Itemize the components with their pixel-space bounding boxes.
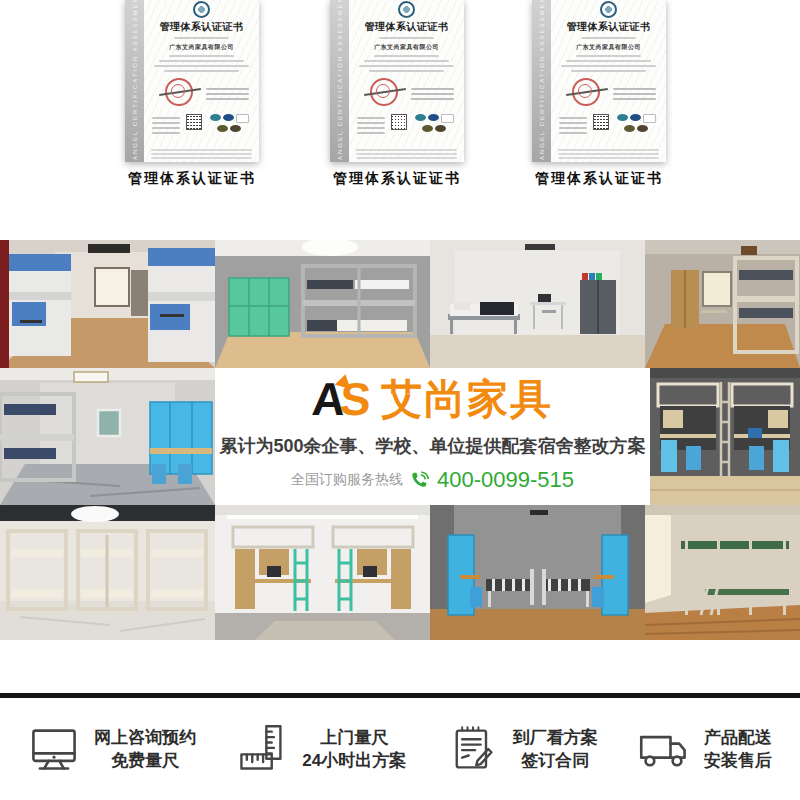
service-item-contract: 到厂看方案 签订合同 xyxy=(447,723,598,775)
certification-emblem-icon xyxy=(398,1,415,18)
hotline-row: 全国订购服务热线 400-0099-515 xyxy=(291,467,574,493)
certificate-title: 管理体系认证证书 xyxy=(151,20,252,34)
certificate-title: 管理体系认证证书 xyxy=(356,20,457,34)
photo-blue-bunk-dorm xyxy=(0,240,215,368)
accreditation-badges xyxy=(411,114,457,132)
certificate-2: ANGEL CERTIFICATION ASSESSMENT SERVICES … xyxy=(330,0,464,162)
service-features-bar: 网上咨询预约 免费量尺 上门量尺 24小时出方案 xyxy=(0,698,800,800)
certificate-ribbon: ANGEL CERTIFICATION ASSESSMENT SERVICES xyxy=(125,0,144,162)
hotline-label: 全国订购服务热线 xyxy=(291,471,403,489)
certificate-paper: 管理体系认证证书 广东艾尚家具有限公司 xyxy=(144,0,259,162)
text-line xyxy=(154,65,250,67)
service-line2: 24小时出方案 xyxy=(302,749,406,772)
text-line xyxy=(159,60,245,62)
service-line2: 安装售后 xyxy=(704,749,772,772)
qr-code-icon xyxy=(593,114,609,130)
service-item-delivery: 产品配送 安装售后 xyxy=(638,723,772,775)
photo-single-bed-office xyxy=(430,240,645,368)
certificate-company: 广东艾尚家具有限公司 xyxy=(151,43,252,52)
logo: A S 艾尚家具 xyxy=(312,373,553,421)
service-line1: 上门量尺 xyxy=(302,726,406,749)
accreditation-badges xyxy=(206,114,252,132)
text-line xyxy=(169,55,235,57)
fine-print xyxy=(151,147,252,159)
photo-gray-dorm-blue-lockers xyxy=(0,368,215,505)
dorm-photo-gallery: A S 艾尚家具 累计为500余企事、学校、单位提供配套宿舍整改方案 全国订购服… xyxy=(0,240,800,640)
certificate-paper: 管理体系认证证书 广东艾尚家具有限公司 xyxy=(349,0,464,162)
red-seal-icon xyxy=(370,78,398,106)
brand-name: 艾尚家具 xyxy=(381,377,553,421)
certificate-dates xyxy=(205,85,250,100)
qr-code-icon xyxy=(186,114,202,130)
certification-emblem-icon xyxy=(193,1,210,18)
service-line1: 产品配送 xyxy=(704,726,772,749)
certificate-ribbon: ANGEL CERTIFICATION ASSESSMENT SERVICES xyxy=(532,0,551,162)
hotline-number: 400-0099-515 xyxy=(437,467,574,493)
certificate-caption-1: 管理体系认证证书 xyxy=(125,170,259,188)
certificate-3: ANGEL CERTIFICATION ASSESSMENT SERVICES … xyxy=(532,0,666,162)
service-line2: 签订合同 xyxy=(513,749,598,772)
service-line2: 免费量尺 xyxy=(94,749,196,772)
certificate-number-line xyxy=(174,37,230,39)
photo-dark-loft-workstations xyxy=(650,368,800,505)
service-item-measure: 上门量尺 24小时出方案 xyxy=(236,723,406,775)
service-text: 产品配送 安装售后 xyxy=(704,726,772,772)
certificate-company: 广东艾尚家具有限公司 xyxy=(558,43,659,52)
phone-icon xyxy=(410,470,430,490)
photo-green-lockers-dorm xyxy=(215,240,430,368)
banner-headline: 累计为500余企事、学校、单位提供配套宿舍整改方案 xyxy=(219,434,645,458)
ribbon-text: ANGEL CERTIFICATION ASSESSMENT SERVICES xyxy=(337,0,343,162)
certificate-caption-2: 管理体系认证证书 xyxy=(330,170,464,188)
certificate-title: 管理体系认证证书 xyxy=(558,20,659,34)
ribbon-text: ANGEL CERTIFICATION ASSESSMENT SERVICES xyxy=(132,0,138,162)
photo-green-deck-loft-bed xyxy=(645,505,800,640)
logo-letter-s: S xyxy=(339,377,373,421)
ruler-icon xyxy=(236,723,288,775)
red-seal-icon xyxy=(572,78,600,106)
service-line1: 网上咨询预约 xyxy=(94,726,196,749)
service-line1: 到厂看方案 xyxy=(513,726,598,749)
page: ANGEL CERTIFICATION ASSESSMENT SERVICES … xyxy=(0,0,800,800)
brand-banner: A S 艾尚家具 累计为500余企事、学校、单位提供配套宿舍整改方案 全国订购服… xyxy=(215,368,650,505)
ribbon-text: ANGEL CERTIFICATION ASSESSMENT SERVICES xyxy=(539,0,545,162)
certificate-caption-3: 管理体系认证证书 xyxy=(532,170,666,188)
certificates-section: ANGEL CERTIFICATION ASSESSMENT SERVICES … xyxy=(0,0,800,240)
text-line xyxy=(164,70,240,72)
truck-icon xyxy=(638,723,690,775)
certification-emblem-icon xyxy=(600,1,617,18)
monitor-icon xyxy=(28,723,80,775)
service-text: 网上咨询预约 免费量尺 xyxy=(94,726,196,772)
signature-stroke xyxy=(159,88,201,96)
certificate-company: 广东艾尚家具有限公司 xyxy=(356,43,457,52)
service-text: 到厂看方案 签订合同 xyxy=(513,726,598,772)
red-seal-icon xyxy=(165,78,193,106)
certificate-ribbon: ANGEL CERTIFICATION ASSESSMENT SERVICES xyxy=(330,0,349,162)
contract-icon xyxy=(447,723,499,775)
service-text: 上门量尺 24小时出方案 xyxy=(302,726,406,772)
photo-wood-dorm xyxy=(645,240,800,368)
photo-metal-beds-blue-wardrobes xyxy=(430,505,645,640)
certificate-middle xyxy=(151,78,252,106)
qr-code-icon xyxy=(391,114,407,130)
photo-three-bunks-dorm xyxy=(0,505,215,640)
certificate-paper: 管理体系认证证书 广东艾尚家具有限公司 xyxy=(551,0,666,162)
certificate-1: ANGEL CERTIFICATION ASSESSMENT SERVICES … xyxy=(125,0,259,162)
photo-loft-desks-teal-ladders xyxy=(215,505,430,640)
accreditation-badges xyxy=(613,114,659,132)
service-item-online-booking: 网上咨询预约 免费量尺 xyxy=(28,723,196,775)
logo-monogram: A S xyxy=(312,377,371,421)
certificate-footer xyxy=(151,114,252,134)
issuer-lines xyxy=(151,114,181,134)
